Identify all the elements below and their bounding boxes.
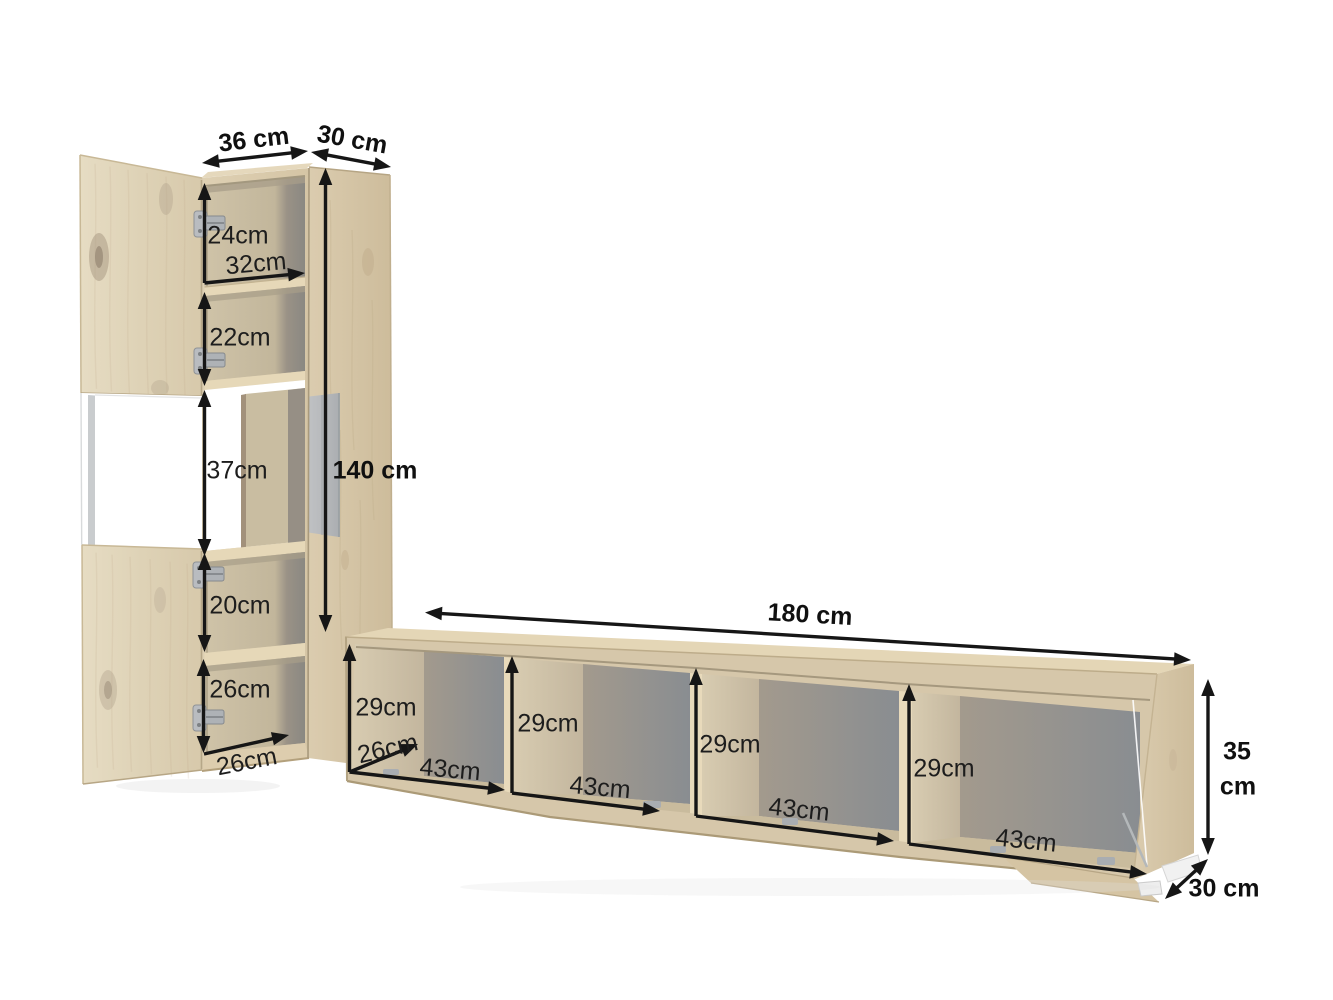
svg-text:180 cm: 180 cm [767,598,853,631]
svg-text:37cm: 37cm [206,457,267,485]
svg-text:30 cm: 30 cm [1189,875,1260,903]
svg-text:29cm: 29cm [913,755,974,783]
svg-text:29cm: 29cm [517,710,578,738]
svg-text:24cm: 24cm [207,222,268,250]
svg-text:35: 35 [1223,738,1251,766]
svg-text:22cm: 22cm [209,324,270,352]
svg-text:26cm: 26cm [209,676,270,704]
svg-text:43cm: 43cm [568,771,631,804]
svg-text:140 cm: 140 cm [333,457,418,485]
svg-text:29cm: 29cm [355,694,416,722]
svg-text:cm: cm [1220,773,1256,801]
svg-text:29cm: 29cm [699,731,760,759]
svg-text:20cm: 20cm [209,592,270,620]
svg-text:32cm: 32cm [224,247,287,280]
svg-text:43cm: 43cm [418,753,481,786]
